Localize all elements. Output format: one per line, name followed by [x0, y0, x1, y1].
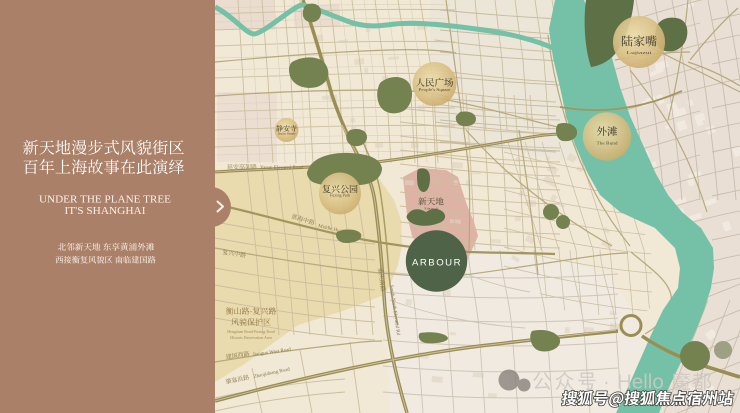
- svg-text:The Bund: The Bund: [597, 141, 618, 146]
- svg-text:ARBOUR: ARBOUR: [412, 257, 462, 268]
- svg-text:Lujiazui: Lujiazui: [627, 50, 653, 55]
- svg-text:IT'S SHANGHAI: IT'S SHANGHAI: [65, 205, 146, 217]
- svg-text:Xintiandi: Xintiandi: [424, 207, 438, 211]
- svg-text:Fuxing Park: Fuxing Park: [330, 194, 350, 198]
- svg-text:·: ·: [603, 372, 610, 394]
- svg-text:Yanan Elevated Road: Yanan Elevated Road: [260, 166, 304, 171]
- svg-text:UNDER THE PLANE TREE: UNDER THE PLANE TREE: [39, 193, 171, 205]
- svg-text:Historic Reservation Area: Historic Reservation Area: [230, 335, 272, 340]
- svg-text:Jing'an Temple: Jing'an Temple: [278, 132, 297, 136]
- svg-text:Hengshan Road-Fuxing Road: Hengshan Road-Fuxing Road: [227, 329, 275, 334]
- svg-text:People's Square: People's Square: [419, 87, 451, 92]
- svg-text:Hello: Hello: [617, 371, 664, 394]
